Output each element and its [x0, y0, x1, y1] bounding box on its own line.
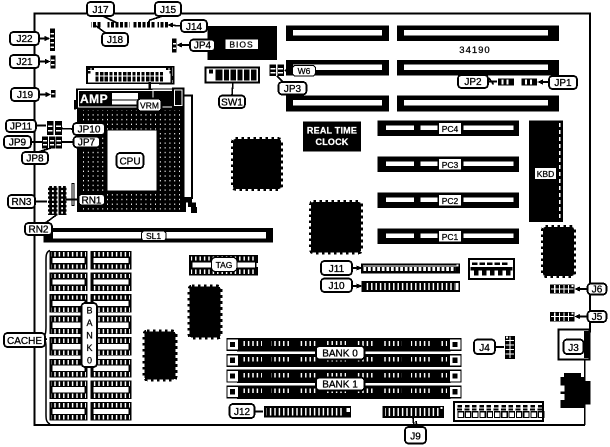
svg-text:JP9: JP9: [9, 138, 27, 149]
svg-text:J11: J11: [329, 264, 345, 275]
svg-text:RN1: RN1: [81, 196, 101, 207]
svg-text:JP7: JP7: [78, 138, 96, 149]
svg-text:N: N: [86, 331, 93, 341]
svg-text:BANK 1: BANK 1: [322, 380, 358, 391]
svg-text:J18: J18: [107, 35, 124, 46]
svg-text:JP1: JP1: [554, 78, 572, 89]
svg-text:K: K: [86, 343, 92, 353]
svg-text:PC2: PC2: [442, 196, 459, 206]
svg-text:SL1: SL1: [146, 231, 161, 241]
svg-text:J9: J9: [410, 432, 421, 443]
svg-text:J22: J22: [16, 34, 33, 45]
svg-text:JP10: JP10: [78, 125, 101, 136]
svg-text:AMP: AMP: [80, 92, 108, 106]
svg-text:J14: J14: [186, 22, 203, 33]
svg-text:VRM: VRM: [140, 101, 159, 111]
svg-text:J17: J17: [92, 5, 109, 16]
svg-text:RN2: RN2: [28, 225, 48, 236]
svg-text:J3: J3: [568, 343, 579, 354]
svg-text:BANK 0: BANK 0: [322, 349, 358, 360]
svg-text:W6: W6: [298, 66, 311, 76]
svg-text:TAG: TAG: [216, 260, 233, 270]
svg-text:J6: J6: [592, 285, 603, 296]
svg-text:CLOCK: CLOCK: [316, 137, 349, 147]
svg-text:SW1: SW1: [221, 98, 243, 109]
svg-text:JP11: JP11: [10, 122, 32, 133]
svg-text:JP3: JP3: [284, 84, 302, 95]
svg-text:PC4: PC4: [442, 124, 459, 134]
svg-text:BIOS: BIOS: [229, 40, 253, 50]
svg-text:KBD: KBD: [537, 169, 554, 179]
svg-text:J12: J12: [234, 407, 251, 418]
svg-text:J15: J15: [160, 5, 177, 16]
svg-text:A: A: [86, 318, 92, 328]
svg-text:0: 0: [87, 356, 92, 366]
svg-text:CACHE: CACHE: [7, 336, 42, 347]
svg-text:J19: J19: [17, 90, 34, 101]
svg-text:B: B: [86, 306, 92, 316]
svg-text:PC3: PC3: [442, 160, 459, 170]
svg-text:JP8: JP8: [26, 154, 44, 165]
svg-text:34190: 34190: [459, 45, 490, 56]
svg-text:J10: J10: [328, 281, 345, 292]
svg-text:JP2: JP2: [464, 77, 482, 88]
svg-text:JP4: JP4: [194, 41, 212, 52]
svg-text:J4: J4: [479, 343, 490, 354]
svg-text:RN3: RN3: [11, 197, 31, 208]
svg-text:REAL TIME: REAL TIME: [307, 126, 357, 136]
svg-text:CPU: CPU: [119, 157, 140, 168]
svg-text:J21: J21: [16, 57, 33, 68]
svg-text:J5: J5: [592, 312, 603, 323]
svg-text:PC1: PC1: [442, 232, 459, 242]
